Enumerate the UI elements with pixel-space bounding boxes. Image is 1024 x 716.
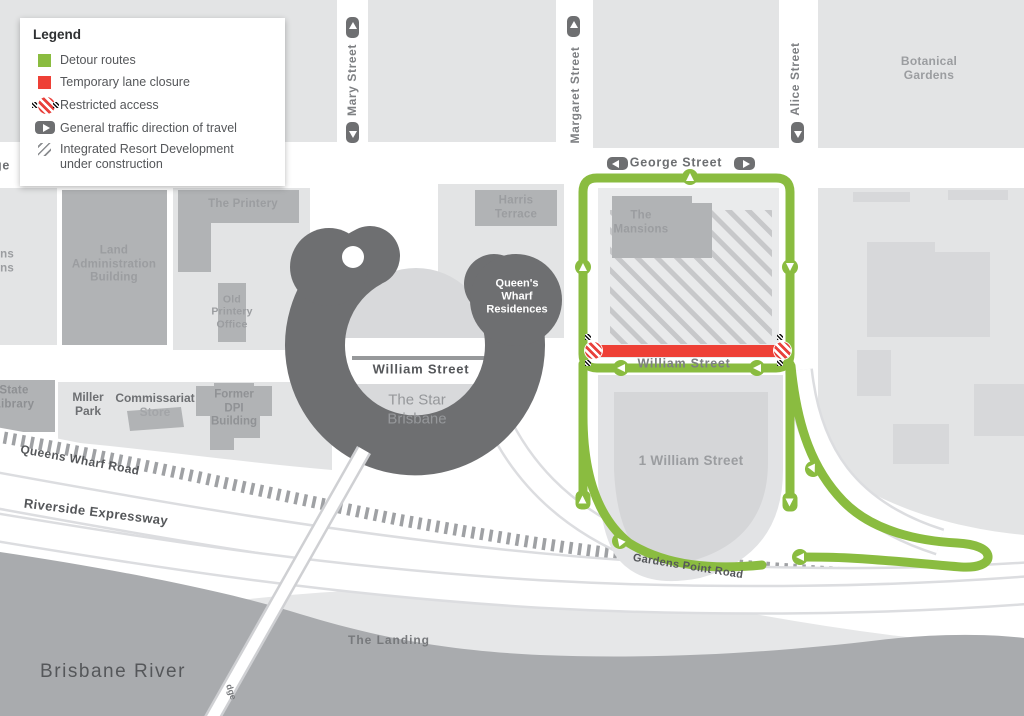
commissariat-store-building (127, 407, 184, 431)
restricted-tick-icon (53, 102, 59, 108)
margaret-street-north-arrow-icon (567, 16, 580, 37)
legend-closure-label: Temporary lane closure (60, 75, 190, 90)
legend-panel: Legend Detour routes Temporary lane clos… (20, 18, 285, 186)
restricted-access-icon-west (585, 342, 602, 359)
george-street-west-arrow-icon (607, 157, 628, 170)
george-street-east-arrow-icon (734, 157, 755, 170)
detour-arrow-west-2 (749, 360, 765, 376)
detour-end-alice (783, 493, 798, 512)
the-mansions-building (612, 196, 712, 258)
restricted-access-icon-east (774, 342, 791, 359)
closed-road-bar (594, 345, 782, 357)
legend-direction-label: General traffic direction of travel (60, 121, 237, 136)
botanical-gardens-block (818, 0, 1024, 148)
detour-end-margaret (576, 491, 591, 510)
william-street-closure-line (352, 356, 488, 360)
queens-gardens-block (0, 188, 57, 345)
mary-street-north-arrow-icon (346, 17, 359, 38)
old-printery-office-building (218, 283, 246, 342)
hatch-tick (777, 334, 783, 340)
detour-arrow-gardens-point (792, 549, 808, 565)
harris-terrace-building (475, 190, 557, 226)
detour-map: Mary Street Margaret Street Alice Street… (0, 0, 1024, 716)
queens-wharf-residences-footprint (470, 254, 562, 346)
hatch-tick (777, 360, 783, 366)
detour-route-swatch-icon (38, 54, 51, 67)
alice-street-south-arrow-icon (791, 122, 804, 143)
legend-restricted-label: Restricted access (60, 98, 159, 113)
hatch-tick (585, 360, 591, 366)
legend-title: Legend (33, 27, 81, 42)
lane-closure-swatch-icon (38, 76, 51, 89)
detour-arrow-south (782, 259, 798, 275)
hatch-tick (585, 334, 591, 340)
traffic-direction-legend-icon (35, 121, 55, 134)
mary-street-south-arrow-icon (346, 122, 359, 143)
construction-swatch-icon (38, 143, 51, 156)
legend-construction-label: Integrated Resort Development under cons… (60, 142, 234, 173)
land-administration-building (62, 190, 167, 345)
legend-detour-label: Detour routes (60, 53, 136, 68)
detour-arrow-west-1 (613, 360, 629, 376)
detour-arrow-east (682, 169, 698, 185)
detour-arrow-north (575, 259, 591, 275)
state-library-building (0, 380, 55, 432)
